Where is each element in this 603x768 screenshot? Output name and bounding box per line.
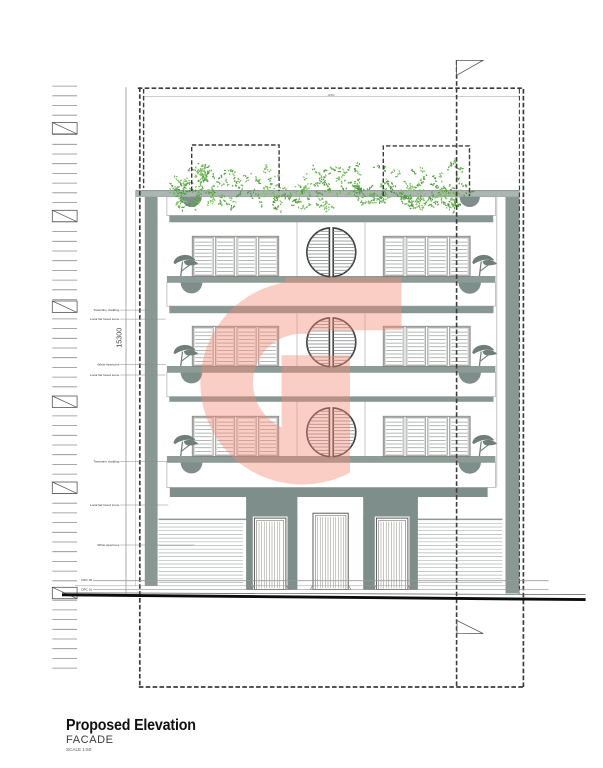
svg-text:Local fair faced stone: Local fair faced stone <box>90 373 120 377</box>
svg-text:White Apertures: White Apertures <box>97 543 119 547</box>
svg-text:Local fair faced stone: Local fair faced stone <box>90 503 120 507</box>
svg-text:11300: 11300 <box>327 93 335 97</box>
svg-text:Travertine cladding: Travertine cladding <box>93 308 119 312</box>
svg-text:DPC 02: DPC 02 <box>81 578 92 582</box>
svg-text:White Apertures: White Apertures <box>97 362 119 366</box>
svg-text:15300: 15300 <box>115 328 124 348</box>
svg-text:Local fair faced stone: Local fair faced stone <box>90 317 120 321</box>
svg-text:DPC 01: DPC 01 <box>81 587 92 591</box>
svg-text:Travertine cladding: Travertine cladding <box>93 460 119 464</box>
